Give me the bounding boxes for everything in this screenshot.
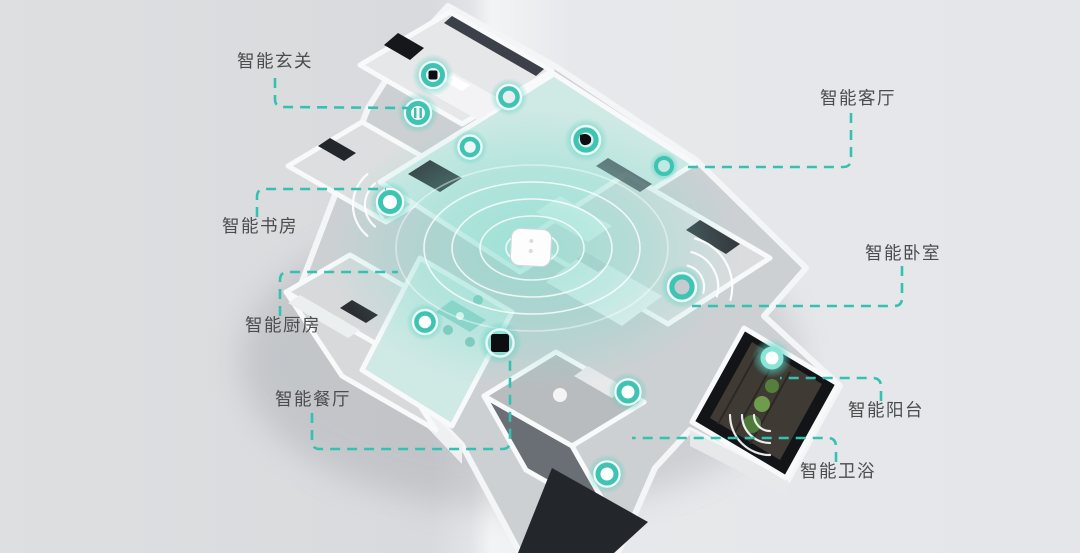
label-study: 智能书房 — [222, 219, 298, 237]
bathroom-sensor-upper-icon — [608, 372, 648, 412]
living-speaker-icon — [452, 129, 488, 165]
living-camera-icon — [564, 118, 608, 162]
hub-device — [510, 228, 552, 267]
study-sensor-icon — [369, 181, 411, 223]
label-living-room: 智能客厅 — [820, 91, 896, 109]
leader-living — [681, 113, 851, 167]
label-kitchen: 智能厨房 — [245, 318, 321, 336]
living-wall-sensor-icon — [649, 151, 679, 181]
label-entryway: 智能玄关 — [237, 54, 313, 72]
smart-home-diagram: 智能玄关 智能客厅 智能书房 智能厨房 智能餐厅 智能卧室 智能阳台 智能卫浴 — [0, 0, 1080, 553]
bathroom-sensor-lower-icon — [587, 454, 627, 494]
bedroom-sensor-icon — [660, 265, 704, 309]
label-bathroom: 智能卫浴 — [800, 464, 876, 482]
entryway-camera-icon — [412, 54, 454, 96]
label-dining-room: 智能餐厅 — [275, 392, 351, 410]
label-balcony: 智能阳台 — [848, 403, 924, 421]
entryway-switch-icon — [397, 92, 439, 134]
balcony-light-icon — [752, 338, 792, 378]
kitchen-sensor-icon — [406, 303, 444, 341]
floorplan-illustration — [0, 0, 1080, 553]
bedroom2-speaker-icon — [490, 78, 528, 116]
dining-control-panel-icon — [478, 321, 522, 365]
label-bedroom: 智能卧室 — [865, 246, 941, 264]
